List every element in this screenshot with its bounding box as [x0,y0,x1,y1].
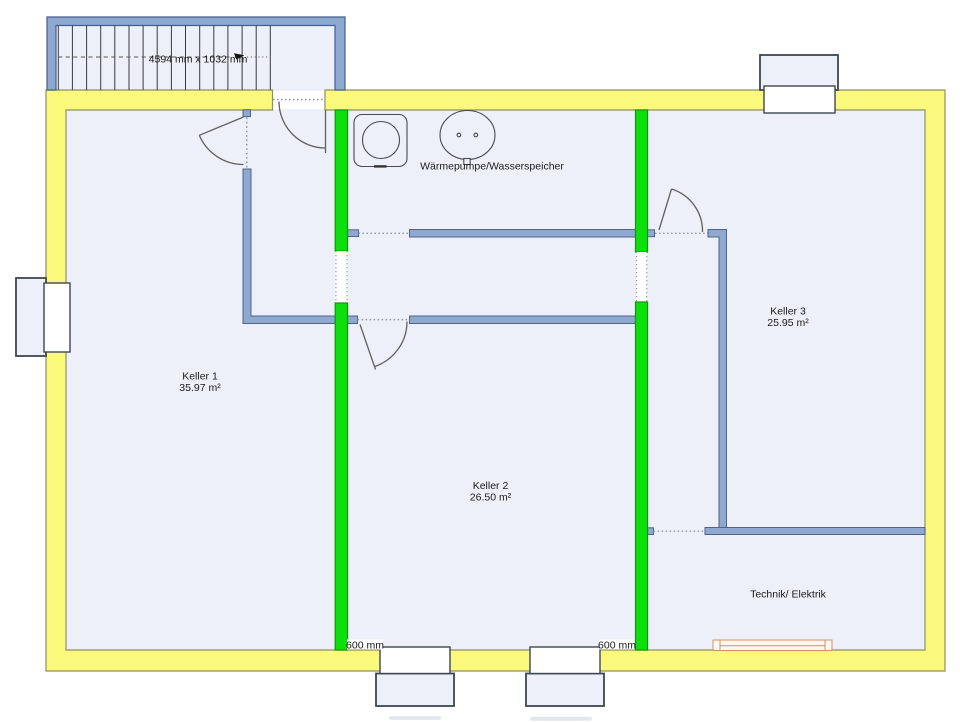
svg-text:Technik/ Elektrik: Technik/ Elektrik [750,589,827,601]
svg-text:35.97 m²: 35.97 m² [179,382,221,394]
svg-text:Keller 2: Keller 2 [473,480,509,492]
svg-text:26.50 m²: 26.50 m² [470,491,512,503]
svg-text:Wärmepumpe/Wasserspeicher: Wärmepumpe/Wasserspeicher [420,161,564,173]
svg-text:Keller 1: Keller 1 [182,371,218,383]
svg-text:4594 mm x 1032 mm: 4594 mm x 1032 mm [149,54,248,66]
svg-text:600 mm: 600 mm [598,640,636,652]
svg-text:600 mm: 600 mm [346,640,384,652]
svg-text:Keller 3: Keller 3 [770,306,806,318]
svg-text:25.95 m²: 25.95 m² [767,317,809,329]
